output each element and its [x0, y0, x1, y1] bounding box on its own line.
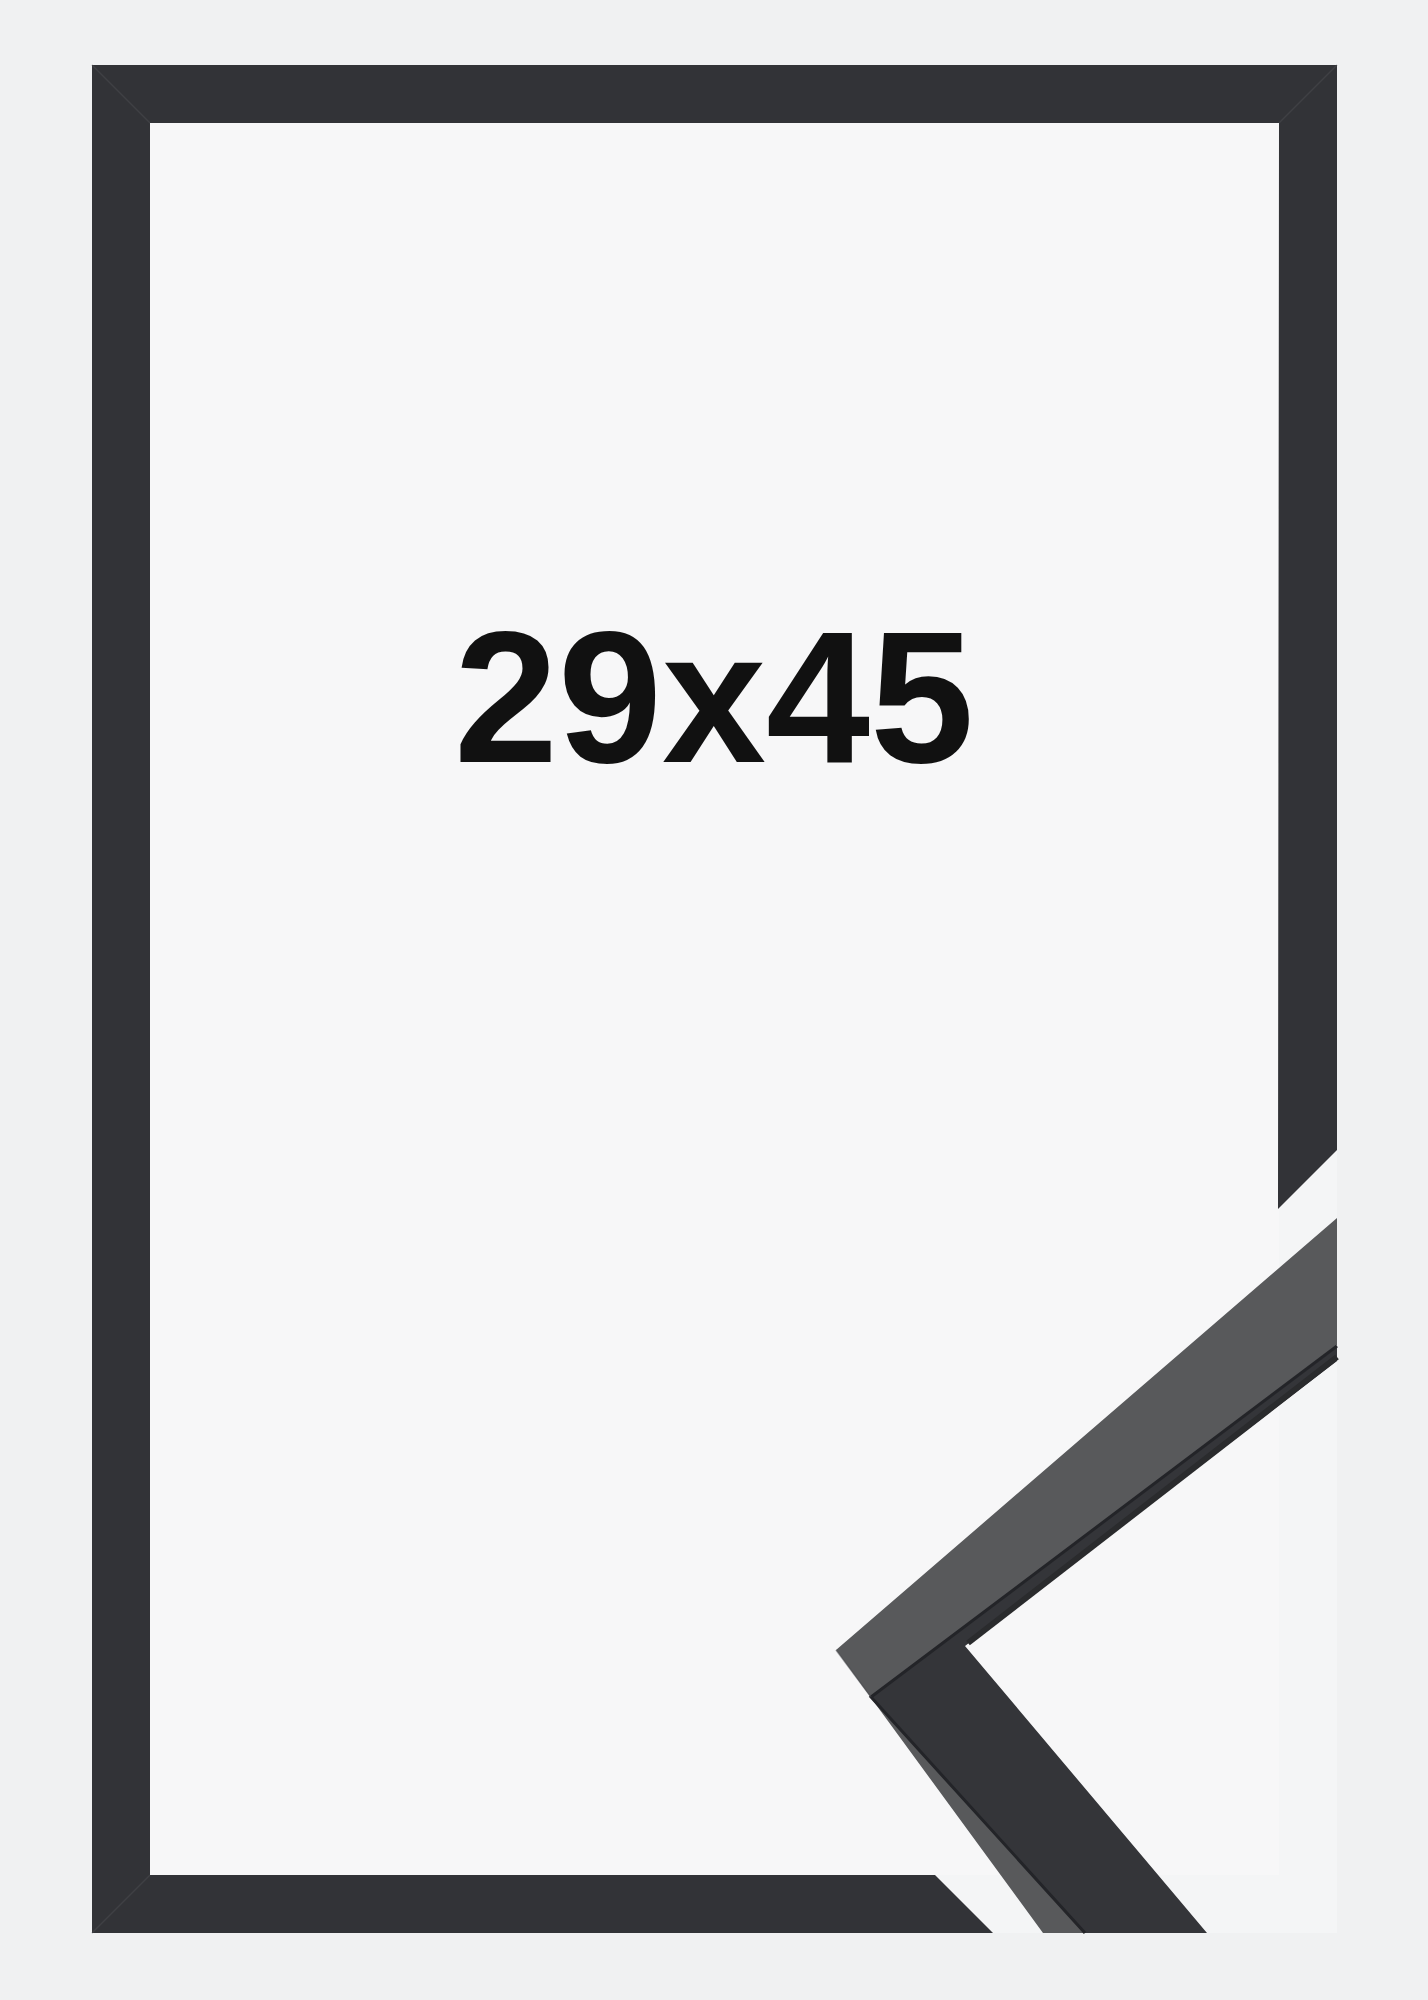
size-label: 29x45	[0, 604, 1428, 791]
frame-opening-paper	[150, 123, 1279, 1875]
frame-photo-graphic	[0, 0, 1428, 2000]
product-image: 29x45	[0, 0, 1428, 2000]
